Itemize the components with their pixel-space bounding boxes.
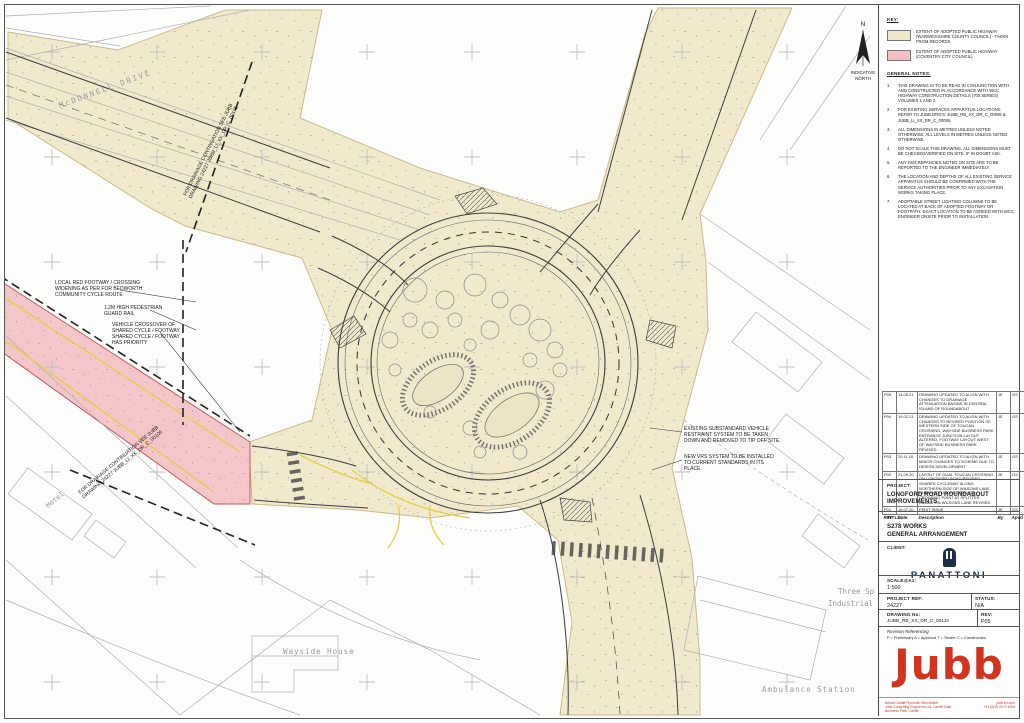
divider-vertical bbox=[971, 593, 972, 609]
general-notes-title: GENERAL NOTES: bbox=[887, 71, 931, 76]
status-label: STATUS: bbox=[975, 596, 996, 601]
jubb-logo: Jubb bbox=[879, 639, 1019, 691]
general-notes-list: 1.THIS DRAWING IS TO BE READ IN CONJUNCT… bbox=[887, 83, 1014, 223]
key-item-warwickshire: EXTENT OF ADOPTED PUBLIC HIGHWAY (WARWIC… bbox=[887, 30, 1015, 45]
date-cell: 19.02.21 bbox=[897, 413, 918, 454]
note-number: 3. bbox=[887, 127, 894, 142]
scale-value: 1:500 bbox=[887, 585, 901, 591]
note-item: 1.THIS DRAWING IS TO BE READ IN CONJUNCT… bbox=[887, 83, 1014, 103]
divider bbox=[879, 593, 1019, 594]
note-text: ANY DISCREPANCIES NOTED ON SITE ARE TO B… bbox=[898, 160, 1014, 170]
north-label: NORTH bbox=[855, 76, 871, 81]
note-item: 7.ADOPTABLE STREET LIGHTING COLUMNS TO B… bbox=[887, 199, 1014, 219]
north-n-label: N bbox=[861, 21, 866, 28]
coventry-swatch bbox=[887, 50, 911, 61]
rev-cell: P03 bbox=[883, 454, 897, 471]
annotation-line: COMMUNITY CYCLE ROUTE bbox=[55, 292, 123, 298]
divider bbox=[879, 697, 1019, 698]
by-cell: JE bbox=[997, 454, 1011, 471]
three-spires-label-1: Three Sp bbox=[838, 587, 875, 596]
date-cell: 14.05.21 bbox=[897, 392, 918, 414]
footer-offices: Bristol Cardiff Plymouth Winchester Jubb… bbox=[885, 701, 965, 714]
note-text: THE LOCATION AND DEPTHS OF ALL EXISTING … bbox=[898, 174, 1014, 194]
divider bbox=[879, 575, 1019, 576]
key-item-label: EXTENT OF ADOPTED PUBLIC HIGHWAY (COVENT… bbox=[916, 50, 1015, 60]
key-title: KEY: bbox=[887, 17, 898, 22]
rev-value: P05 bbox=[981, 619, 991, 625]
apvd-cell: GS bbox=[1011, 413, 1024, 454]
annotation-line: HAS PRIORITY bbox=[112, 340, 148, 346]
note-item: 2.FOR EXISTING SERVICES APPARATUS LOCATI… bbox=[887, 107, 1014, 122]
divider bbox=[879, 541, 1019, 542]
title-block-panel: KEY: EXTENT OF ADOPTED PUBLIC HIGHWAY (W… bbox=[878, 5, 1019, 716]
apvd-cell: GS bbox=[1011, 454, 1024, 471]
footer-contact: jubb.eu.com +44 (0)29 2073 4254 bbox=[983, 701, 1015, 709]
apvd-cell: GS bbox=[1011, 392, 1024, 414]
table-header-row: Rev Date Description By Apvd bbox=[883, 515, 1024, 522]
wayside-house-label: Wayside House bbox=[283, 647, 355, 656]
divider bbox=[879, 479, 1019, 480]
rev-cell: P04 bbox=[883, 413, 897, 454]
divider bbox=[879, 609, 1019, 610]
divider bbox=[879, 626, 1019, 627]
header-description: Description bbox=[918, 515, 997, 522]
panattoni-building-icon bbox=[879, 548, 1019, 572]
revision-referencing-title: Revision Referencing bbox=[887, 629, 929, 634]
drawing-title-line1: S278 WORKS bbox=[887, 523, 927, 530]
header-apvd: Apvd bbox=[1011, 515, 1024, 522]
header-by: By bbox=[997, 515, 1011, 522]
divider bbox=[879, 511, 1019, 512]
note-item: 4.DO NOT SCALE THIS DRAWING. ALL DIMENSI… bbox=[887, 146, 1014, 156]
note-item: 6.THE LOCATION AND DEPTHS OF ALL EXISTIN… bbox=[887, 174, 1014, 194]
vrs-existing-note: EXISTING SUBSTANDARD VEHICLE RESTRAINT S… bbox=[684, 426, 781, 444]
table-row: P03 20.11.20 DRAWING UPDATED TO ALIGN WI… bbox=[883, 454, 1024, 471]
note-item: 5.ANY DISCREPANCIES NOTED ON SITE ARE TO… bbox=[887, 160, 1014, 170]
ambulance-station-label: Ambulance Station bbox=[762, 685, 856, 694]
divider-vertical bbox=[977, 609, 978, 626]
desc-cell: DRAWING UPDATED TO ALIGN WITH CHANGES TO… bbox=[918, 413, 997, 454]
title-label: TITLE: bbox=[887, 515, 903, 520]
table-row: P04 19.02.21 DRAWING UPDATED TO ALIGN WI… bbox=[883, 413, 1024, 454]
warwickshire-swatch bbox=[887, 30, 911, 41]
project-name: LONGFORD ROAD ROUNDABOUT IMPROVEMENTS bbox=[887, 491, 1013, 505]
note-item: 3.ALL DIMENSIONS IN METRES UNLESS NOTED … bbox=[887, 127, 1014, 142]
note-number: 2. bbox=[887, 107, 894, 122]
note-text: DO NOT SCALE THIS DRAWING. ALL DIMENSION… bbox=[898, 146, 1014, 156]
annotation-line: GUARD RAIL bbox=[104, 311, 135, 317]
annotation-line: PLACE. bbox=[684, 466, 702, 472]
project-label: PROJECT: bbox=[887, 483, 911, 488]
note-text: ALL DIMENSIONS IN METRES UNLESS NOTED OT… bbox=[898, 127, 1014, 142]
desc-cell: DRAWING UPDATED TO ALIGN WITH MINOR CHAN… bbox=[918, 454, 997, 471]
desc-cell: DRAWING UPDATED TO ALIGN WITH CHANGES TO… bbox=[918, 392, 997, 414]
date-cell: 20.11.20 bbox=[897, 454, 918, 471]
note-number: 1. bbox=[887, 83, 894, 103]
rev-label: REV: bbox=[981, 612, 993, 617]
key-item-coventry: EXTENT OF ADOPTED PUBLIC HIGHWAY (COVENT… bbox=[887, 50, 1015, 61]
note-number: 7. bbox=[887, 199, 894, 219]
drawing-no-value: JUBB_RB_XX_DR_C_00110 bbox=[887, 619, 949, 624]
by-cell: JE bbox=[997, 413, 1011, 454]
drawing-no-label: DRAWING No: bbox=[887, 612, 920, 617]
by-cell: JE bbox=[997, 392, 1011, 414]
rev-cell: P05 bbox=[883, 392, 897, 414]
indicative-label: INDICATIVE bbox=[851, 70, 875, 75]
footer-phone: +44 (0)29 2073 4254 bbox=[983, 705, 1015, 709]
key-item-label: EXTENT OF ADOPTED PUBLIC HIGHWAY (WARWIC… bbox=[916, 30, 1015, 45]
table-row: P05 14.05.21 DRAWING UPDATED TO ALIGN WI… bbox=[883, 392, 1024, 414]
note-number: 4. bbox=[887, 146, 894, 156]
note-text: ADOPTABLE STREET LIGHTING COLUMNS TO BE … bbox=[898, 199, 1014, 219]
site-plan-drawing: N INDICATIVE NORTH McDONNELL DRIVE Hotel… bbox=[0, 0, 1024, 723]
footer-line: Jubb Consulting Engineers Ltd, Cardiff G… bbox=[885, 705, 965, 713]
drawing-title-line2: GENERAL ARRANGEMENT bbox=[887, 531, 967, 538]
scale-label: SCALE@A1: bbox=[887, 578, 916, 583]
three-spires-label-2: Industrial bbox=[828, 599, 873, 608]
note-text: THIS DRAWING IS TO BE READ IN CONJUNCTIO… bbox=[898, 83, 1014, 103]
project-ref-label: PROJECT REF: bbox=[887, 596, 923, 601]
note-text: FOR EXISTING SERVICES APPARATUS LOCATION… bbox=[898, 107, 1014, 122]
note-number: 6. bbox=[887, 174, 894, 194]
annotation-line: DOWN AND REMOVED TO TIP OFF SITE. bbox=[684, 438, 781, 444]
note-number: 5. bbox=[887, 160, 894, 170]
